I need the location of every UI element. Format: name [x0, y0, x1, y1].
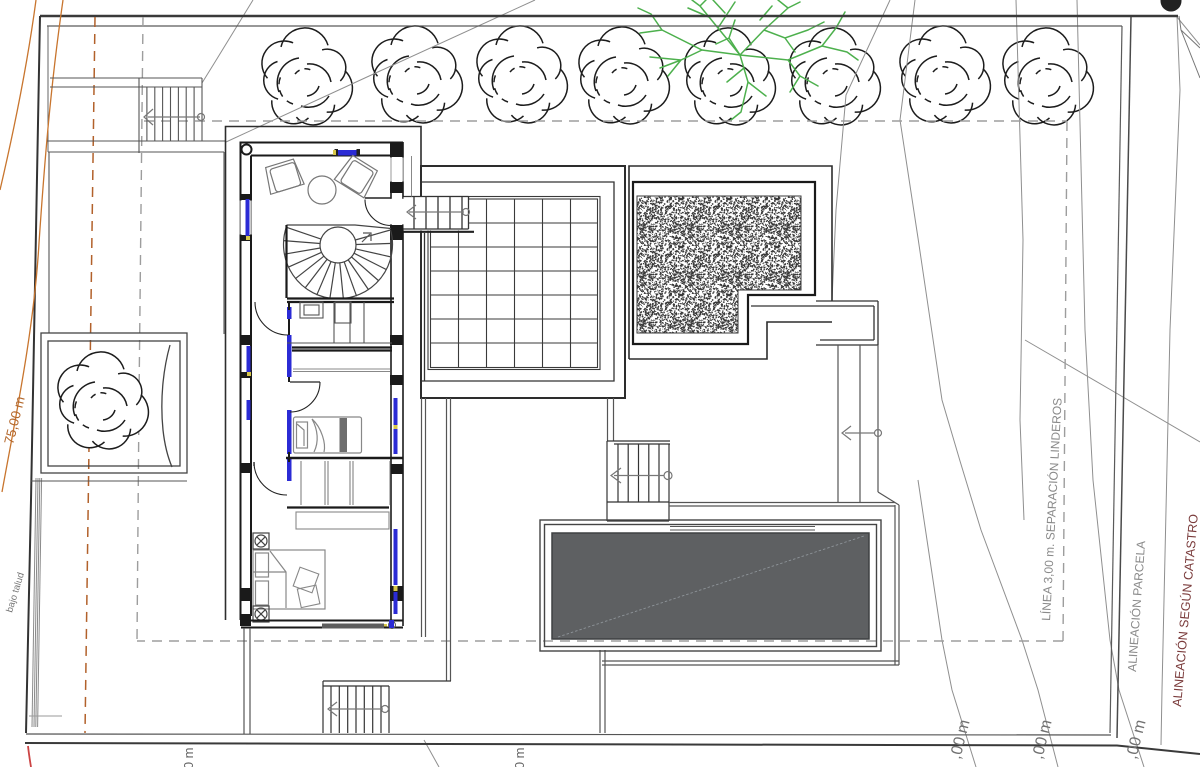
svg-text:,00 m: ,00 m	[512, 747, 527, 767]
svg-text:,00 m: ,00 m	[181, 747, 196, 767]
